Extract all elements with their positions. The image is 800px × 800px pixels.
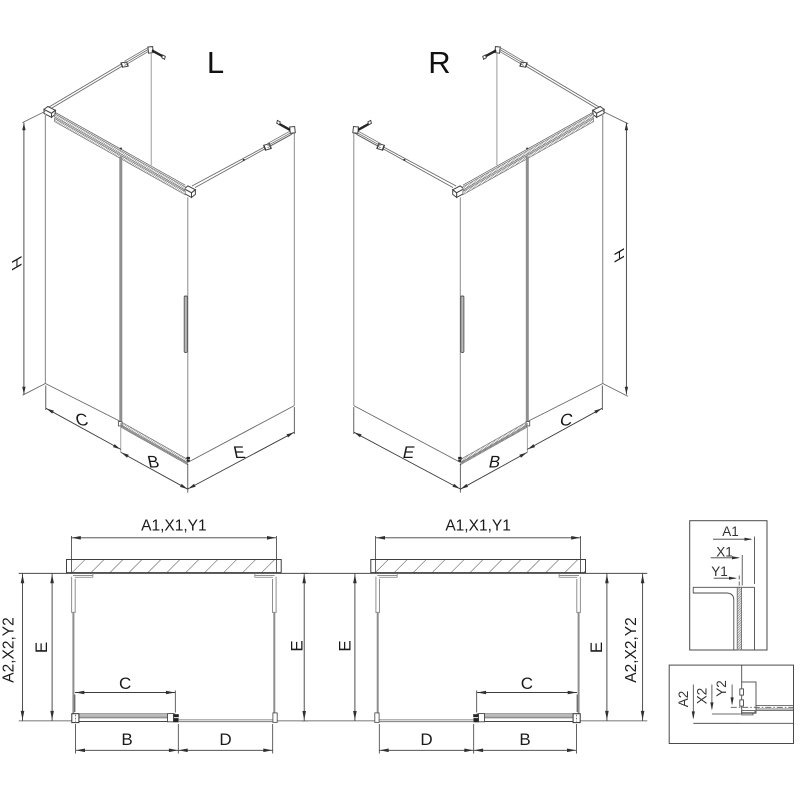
svg-text:R: R	[428, 45, 450, 80]
svg-text:A2: A2	[676, 691, 691, 708]
svg-text:D: D	[219, 730, 231, 749]
svg-text:B: B	[519, 730, 530, 749]
svg-text:A1: A1	[722, 524, 739, 539]
svg-text:B: B	[121, 730, 132, 749]
svg-text:Y1: Y1	[711, 564, 728, 579]
svg-text:B: B	[487, 452, 503, 472]
svg-text:X1: X1	[716, 544, 733, 559]
svg-text:L: L	[207, 45, 224, 80]
svg-text:D: D	[420, 730, 432, 749]
svg-text:E: E	[335, 640, 354, 651]
svg-text:Y2: Y2	[714, 680, 729, 697]
svg-text:X2: X2	[695, 688, 710, 705]
svg-text:A1,X1,Y1: A1,X1,Y1	[141, 518, 207, 535]
svg-text:E: E	[231, 442, 247, 462]
svg-text:E: E	[401, 442, 417, 462]
svg-text:A1,X1,Y1: A1,X1,Y1	[445, 518, 511, 535]
svg-text:B: B	[145, 452, 161, 472]
svg-text:H: H	[611, 246, 626, 266]
svg-text:A2,X2,Y2: A2,X2,Y2	[623, 617, 640, 683]
svg-text:C: C	[119, 674, 131, 693]
svg-text:C: C	[73, 410, 89, 430]
svg-text:E: E	[288, 640, 307, 651]
svg-text:E: E	[32, 642, 51, 653]
svg-text:C: C	[558, 410, 574, 430]
svg-text:A2,X2,Y2: A2,X2,Y2	[1, 617, 18, 683]
svg-text:E: E	[587, 642, 606, 653]
svg-text:C: C	[521, 674, 533, 693]
svg-text:H: H	[9, 254, 24, 274]
